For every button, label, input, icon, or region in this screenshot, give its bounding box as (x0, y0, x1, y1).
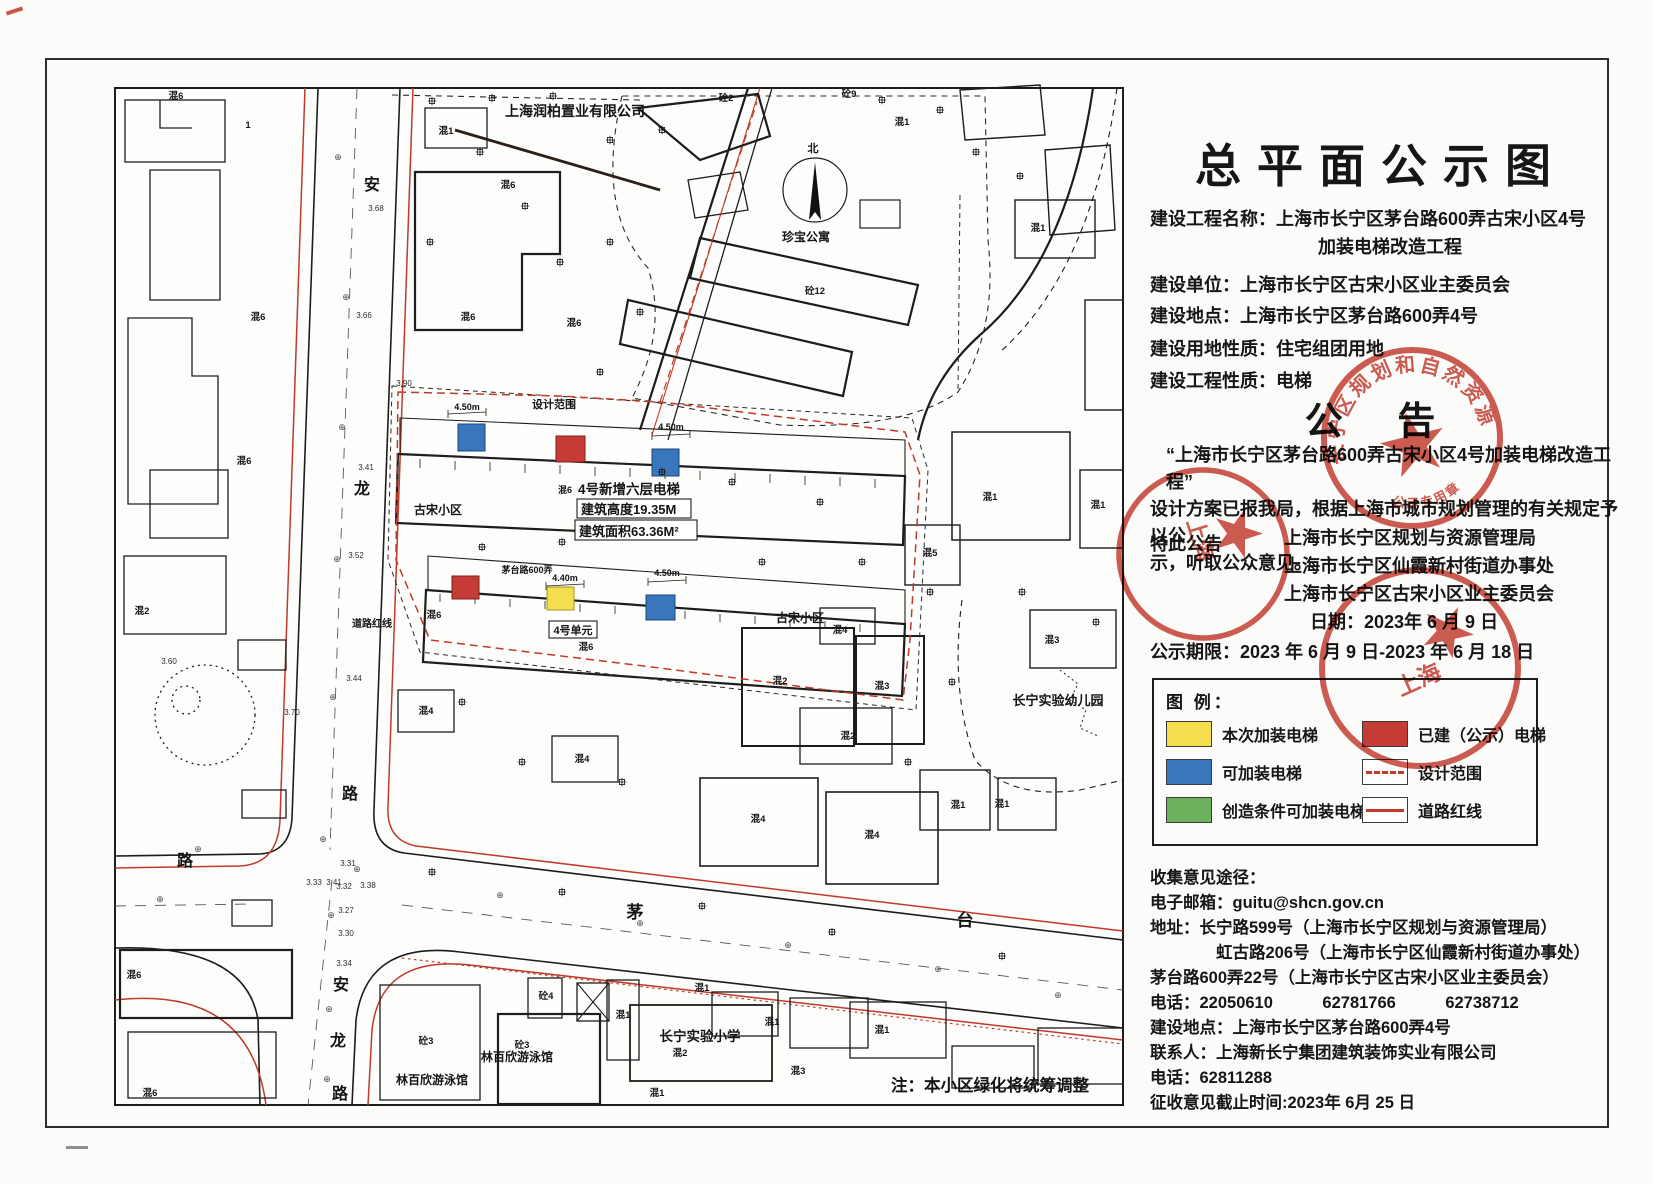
elevation: 3.32 (336, 882, 352, 891)
kindergarten-label: 长宁实验幼儿园 (1012, 693, 1103, 708)
notice-heading: 公 告 (1150, 390, 1612, 445)
bldg-label: 砼9 (842, 88, 857, 100)
contact-address2: 虹古路206号（上海市长宁区仙霞新村街道办事处） (1150, 941, 1638, 966)
bldg-label: 混1 (650, 1087, 666, 1099)
red-line-swatch (1362, 797, 1408, 823)
legend-label: 设计范围 (1418, 760, 1482, 784)
elevator-area: 建筑面积63.36M² (579, 524, 679, 539)
road-name: 茅 (627, 903, 644, 922)
bldg-label: 混6 (501, 179, 516, 191)
bldg-label: 混4 (419, 705, 435, 717)
bldg-label: 混1 (1031, 222, 1047, 234)
bldg-label: 砼3 (419, 1035, 434, 1047)
issuer: 上海市长宁区规划与资源管理局 (1284, 524, 1554, 552)
north-label: 北 (808, 141, 819, 155)
pool-label: 林百欣游泳馆 (481, 1049, 553, 1064)
issuer: 上海市长宁区古宋小区业主委员会 (1284, 580, 1554, 608)
bldg-label: 混4 (751, 813, 767, 825)
manhole-icon: ⊕ (156, 894, 164, 904)
elevation: 3.27 (338, 906, 354, 915)
bldg-label: 混2 (673, 1047, 688, 1059)
bldg-label: 混6 (579, 641, 594, 653)
legend-label: 道路红线 (1418, 798, 1482, 822)
contact-deadline: 征收意见截止时间:2023年 6月 25 日 (1150, 1091, 1638, 1116)
bldg-label: 混1 (983, 491, 999, 503)
contact-phones: 电话：22050610 62781766 62738712 (1150, 991, 1638, 1016)
yellow-swatch (1166, 721, 1212, 747)
scanned-notice-page: ⊕ ⊕ ⊕ ⊕ ⊕ ⊕ ⊕ ⊕ ⊕ ⊕ ⊕ ⊕ ⊕ ⊕ ⊕ ⊕ ⊕ 上海润柏置业… (0, 0, 1653, 1184)
estate-name: 古宋小区 (414, 502, 462, 517)
bldg-label: 混1 (616, 1009, 632, 1021)
location-line: 建设地点：上海市长宁区茅台路600弄4号 (1150, 303, 1628, 329)
contact-email: 电子邮箱：guitu@shcn.gov.cn (1150, 891, 1638, 916)
issuer: 上海市长宁区仙霞新村街道办事处 (1284, 552, 1554, 580)
estate-name: 古宋小区 (776, 610, 824, 625)
contact-phone2: 电话：62811288 (1150, 1066, 1638, 1091)
legend-item-possible: 可加装电梯 (1166, 759, 1362, 785)
apartment-label: 珍宝公寓 (782, 229, 830, 244)
manhole-icon: ⊕ (194, 844, 202, 854)
manhole-icon: ⊕ (325, 1004, 333, 1014)
possible-elevator-marker (458, 424, 485, 451)
bldg-label: 混4 (833, 624, 849, 636)
manhole-icon: ⊕ (319, 834, 327, 844)
red-swatch (1362, 721, 1408, 747)
contact-address3: 茅台路600弄22号（上海市长宁区古宋小区业主委员会） (1150, 966, 1638, 991)
elevation: 3.66 (356, 311, 372, 320)
manhole-icon: ⊕ (323, 1074, 331, 1084)
legend-item-conditional: 创造条件可加装电梯 (1166, 797, 1362, 823)
bldg-label: 混6 (251, 311, 266, 323)
legend-label: 可加装电梯 (1222, 760, 1302, 784)
legend-item-redline: 道路红线 (1362, 797, 1546, 823)
elevation: 3.33 (306, 878, 322, 887)
blue-swatch (1166, 759, 1212, 785)
bldg-label: 混6 (567, 317, 582, 329)
legend-item-scope: 设计范围 (1362, 759, 1546, 785)
manhole-icon: ⊕ (496, 890, 504, 900)
map-frame (115, 88, 1123, 1105)
elevation: 3.41 (358, 463, 374, 472)
road-name: 龙 (329, 1031, 346, 1050)
bldg-label: 砼3 (515, 1039, 530, 1051)
current-elevator-marker (547, 587, 574, 610)
bldg-label: 混6 (143, 1087, 158, 1099)
proclaim-row: 特此公告 上海市长宁区规划与资源管理局 上海市长宁区仙霞新村街道办事处 上海市长… (1150, 524, 1628, 636)
bldg-label: 混6 (237, 455, 252, 467)
notice-date: 日期：2023年 6 月 9 日 (1284, 608, 1554, 636)
legend-label: 本次加装电梯 (1222, 722, 1318, 746)
legend-box: 图 例： 本次加装电梯 已建（公示）电梯 可加装电梯 设计范围 创造条件可加装电… (1152, 678, 1538, 846)
builder-line: 建设单位：上海市长宁区古宋小区业主委员会 (1150, 272, 1628, 298)
bldg-label: 混6 (169, 90, 184, 102)
elevation: 3.44 (346, 674, 362, 683)
bldg-label: 混3 (875, 680, 890, 692)
project-name-line: 建设工程名称：上海市长宁区茅台路600弄古宋小区4号 (1150, 206, 1628, 232)
contact-block: 收集意见途径： 电子邮箱：guitu@shcn.gov.cn 地址：长宁路599… (1150, 866, 1638, 1116)
dim-label: 4.50m (654, 568, 680, 578)
bldg-label: 混5 (923, 547, 939, 559)
bldg-label: 砼12 (805, 285, 825, 297)
bldg-label: 混2 (135, 605, 150, 617)
elevation: 3.31 (340, 859, 356, 868)
bldg-label: 混1 (995, 798, 1011, 810)
bldg-label: 混1 (895, 116, 911, 128)
elevation: 3.38 (360, 881, 376, 890)
elevation: 3.52 (348, 551, 364, 560)
contact-person: 联系人：上海新长宁集团建筑装饰实业有限公司 (1150, 1041, 1638, 1066)
bldg-label: 混2 (841, 730, 856, 742)
legend-item-built: 已建（公示）电梯 (1362, 721, 1546, 747)
bldg-label: 混1 (439, 125, 455, 137)
road-name: 路 (177, 851, 194, 870)
manhole-icon: ⊕ (333, 554, 341, 564)
manhole-icon: ⊕ (329, 692, 337, 702)
manhole-icon: ⊕ (334, 152, 342, 162)
company-label: 上海润柏置业有限公司 (505, 103, 645, 119)
project-name-line2: 加装电梯改造工程 (1150, 234, 1628, 260)
elevation: 3.68 (368, 204, 384, 213)
bldg-type: 混6 (558, 484, 572, 495)
bldg-label: 混4 (865, 829, 881, 841)
unit-label: 4号单元 (553, 623, 592, 637)
manhole-icon: ⊕ (934, 964, 942, 974)
built-elevator-marker (452, 576, 479, 599)
manhole-icon: ⊕ (338, 422, 346, 432)
project-info: 建设工程名称：上海市长宁区茅台路600弄古宋小区4号 加装电梯改造工程 建设单位… (1150, 206, 1628, 394)
school-label: 长宁实验小学 (660, 1028, 741, 1044)
elevator-title: 4号新增六层电梯 (578, 481, 681, 497)
road-name: 安 (364, 175, 380, 194)
elevation: 3.30 (338, 929, 354, 938)
manhole-icon: ⊕ (1054, 990, 1062, 1000)
map-note: 注：本小区绿化将统筹调整 (891, 1075, 1090, 1095)
elevator-height: 建筑高度19.35M (581, 502, 676, 517)
elevation: 3.70 (284, 708, 300, 717)
dim-label: 4.40m (552, 573, 578, 583)
land-use-line: 建设用地性质：住宅组团用地 (1150, 336, 1628, 362)
lane-label: 茅台路600弄 (501, 564, 552, 575)
dim-label: 4.50m (658, 422, 684, 432)
bldg-label: 砼2 (719, 92, 734, 104)
bldg-label: 1 (245, 120, 251, 131)
bldg-label: 混1 (765, 1016, 781, 1028)
bldg-label: 混1 (951, 799, 967, 811)
issuer-list: 上海市长宁区规划与资源管理局 上海市长宁区仙霞新村街道办事处 上海市长宁区古宋小… (1284, 524, 1554, 636)
manhole-icon: ⊕ (784, 940, 792, 950)
road-name: 台 (957, 910, 974, 930)
legend-title: 图 例： (1166, 688, 1524, 713)
manhole-icon: ⊕ (342, 292, 350, 302)
possible-elevator-marker (646, 595, 675, 620)
bldg-label: 混1 (1091, 499, 1107, 511)
bldg-label: 混6 (127, 969, 142, 981)
legend-item-current: 本次加装电梯 (1166, 721, 1362, 747)
bldg-label: 混3 (1045, 634, 1060, 646)
bldg-label: 混4 (575, 753, 591, 765)
elevation: 3.90 (396, 379, 412, 388)
contact-heading: 收集意见途径： (1150, 866, 1638, 891)
contact-site: 建设地点：上海市长宁区茅台路600弄4号 (1150, 1016, 1638, 1041)
road-name: 龙 (353, 479, 370, 498)
green-swatch (1166, 797, 1212, 823)
bldg-label: 混1 (695, 982, 711, 994)
bldg-label: 混1 (875, 1024, 891, 1036)
page-title: 总平面公示图 (1150, 130, 1612, 196)
scope-label: 设计范围 (532, 397, 576, 411)
bldg-label: 混3 (791, 1065, 806, 1077)
bldg-label: 混6 (461, 311, 476, 323)
road-name: 路 (332, 1084, 349, 1103)
bldg-label: 砼4 (539, 990, 555, 1002)
proclaim-label: 特此公告 (1150, 524, 1222, 636)
manhole-icon: ⊕ (327, 910, 335, 920)
elevation: 3.34 (336, 959, 352, 968)
dashed-line-swatch (1362, 759, 1408, 785)
legend-label: 创造条件可加装电梯 (1222, 798, 1366, 822)
publicity-period: 公示期限：2023 年 6 月 9 日-2023 年 6 月 18 日 (1150, 638, 1640, 664)
pool-label: 林百欣游泳馆 (396, 1072, 468, 1087)
road-name: 安 (333, 975, 349, 994)
elevation: 3.60 (161, 657, 177, 666)
notice-line: “上海市长宁区茅台路600弄古宋小区4号加装电梯改造工程” (1150, 442, 1632, 496)
built-elevator-marker (556, 436, 585, 462)
bldg-label: 混2 (773, 675, 788, 687)
bldg-label: 混6 (427, 609, 442, 621)
redline-label: 道路红线 (352, 617, 392, 630)
road-name: 路 (342, 784, 359, 803)
contact-address1: 地址：长宁路599号（上海市长宁区规划与资源管理局） (1150, 916, 1638, 941)
dim-label: 4.50m (454, 402, 480, 412)
legend-label: 已建（公示）电梯 (1418, 722, 1546, 746)
